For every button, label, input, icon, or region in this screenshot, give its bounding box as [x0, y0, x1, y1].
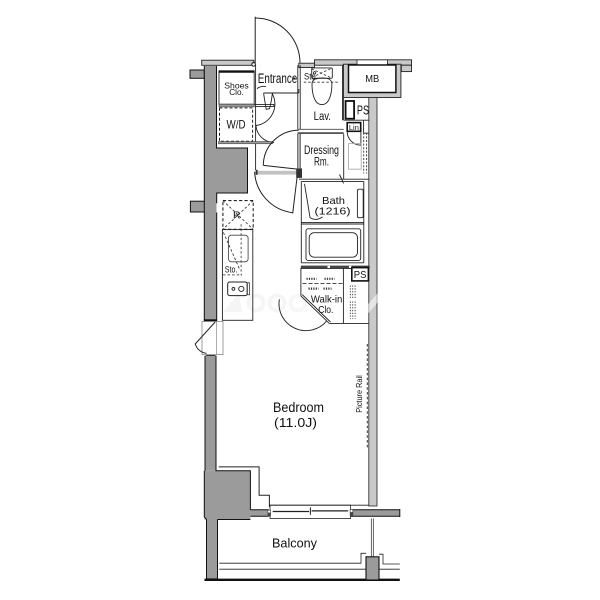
svg-text:Lav.: Lav.: [314, 111, 331, 123]
svg-text:Rm.: Rm.: [314, 156, 329, 168]
svg-text:(11.0J): (11.0J): [274, 415, 317, 430]
svg-text:Sto.: Sto.: [225, 265, 238, 275]
svg-text:Clo.: Clo.: [318, 304, 333, 316]
svg-text:Entrance: Entrance: [258, 71, 298, 86]
svg-text:R: R: [233, 210, 240, 221]
svg-text:Sto.: Sto.: [304, 71, 318, 81]
svg-text:MB: MB: [365, 73, 379, 85]
svg-text:Balcony: Balcony: [272, 536, 318, 551]
svg-text:W/D: W/D: [227, 118, 246, 132]
svg-text:(1216): (1216): [315, 206, 351, 218]
svg-text:Picture Rail: Picture Rail: [354, 375, 364, 413]
svg-text:PS: PS: [357, 103, 369, 117]
svg-text:Lin: Lin: [349, 123, 359, 132]
svg-text:Bedroom: Bedroom: [273, 400, 324, 415]
svg-text:PS: PS: [354, 270, 367, 281]
svg-text:Clo.: Clo.: [229, 87, 244, 97]
